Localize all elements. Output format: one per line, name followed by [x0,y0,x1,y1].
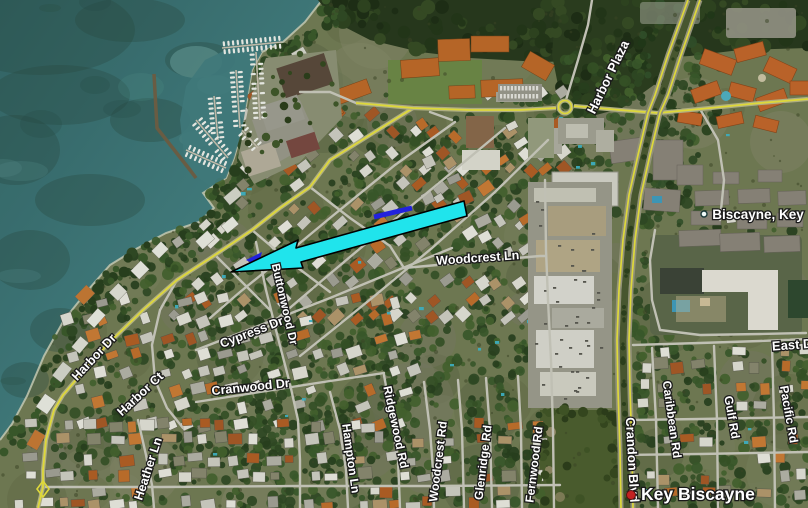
svg-text:Biscayne, Key: Biscayne, Key [712,207,804,222]
svg-text:East Dr: East Dr [771,335,808,353]
svg-text:Key Biscayne: Key Biscayne [641,484,755,504]
